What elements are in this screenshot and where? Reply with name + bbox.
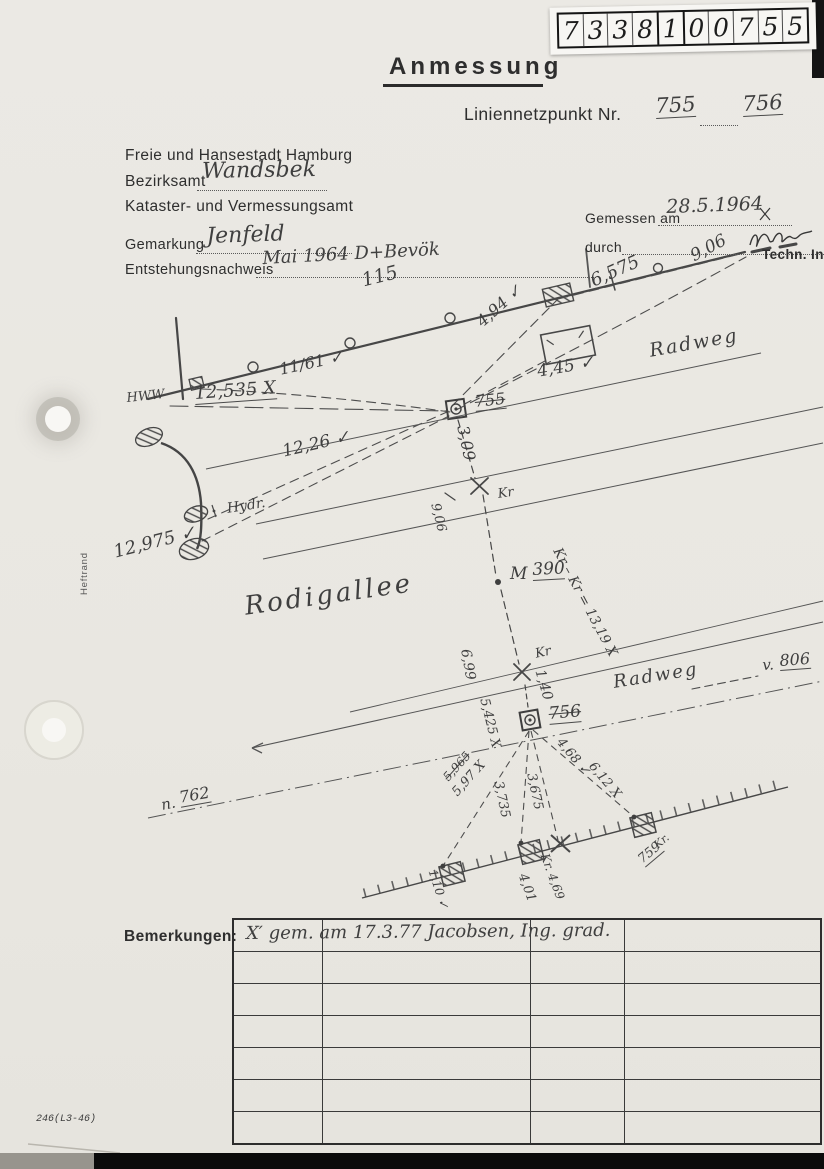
file-digit: 5: [782, 9, 807, 42]
gemessen-dotline: [658, 224, 792, 226]
point-label-756: 756: [548, 703, 582, 725]
point-number-label: Liniennetzpunkt Nr.: [464, 104, 621, 125]
file-digit: 1: [656, 12, 682, 45]
fence: [362, 782, 788, 898]
agency-line-3: Kataster- und Vermessungsamt: [125, 198, 353, 216]
file-digit: 3: [582, 14, 607, 47]
label-m: M: [510, 566, 527, 583]
stamp-text: Techn. In: [762, 247, 824, 262]
label-hww: HWW: [126, 388, 165, 405]
table-row: [234, 1015, 820, 1047]
point-label-755: 755: [474, 391, 506, 412]
file-digit: 5: [757, 10, 782, 43]
label-v: v.: [762, 657, 774, 673]
table-row: [234, 1047, 820, 1079]
file-digit: 8: [632, 13, 657, 46]
label-n: n.: [160, 795, 177, 812]
file-number-sticker: 7 3 3 8 1 0 0 7 5 5: [550, 2, 817, 55]
label-kr-top: Kr: [497, 486, 515, 501]
label-806: 806: [779, 651, 811, 671]
hydrant-symbol: [182, 503, 216, 525]
file-digit: 7: [733, 10, 758, 43]
bemerkungen-entry: X′ gem. am 17.3.77 Jacobsen, Ing. grad.: [246, 922, 610, 943]
table-row: [234, 951, 820, 983]
margin-note: Heftrand: [80, 552, 90, 595]
scanned-survey-form: 7 3 3 8 1 0 0 7 5 5 Anmessung Liniennetz…: [0, 0, 824, 1169]
gemarkung-value: Jenfeld: [206, 223, 285, 248]
table-row: [234, 983, 820, 1015]
punch-hole-top: [45, 406, 71, 432]
durch-label: durch: [585, 239, 622, 255]
bemerkungen-table: [232, 918, 822, 1145]
point-number-756: 756: [742, 92, 783, 117]
gemessen-value: 28.5.1964: [666, 195, 763, 217]
bezirksamt-value: Wandsbek: [202, 159, 316, 183]
label-kr-mid: Kr: [534, 645, 552, 661]
scan-edge-bottom-left: [0, 1153, 94, 1169]
point-number-dots: [700, 124, 738, 126]
bezirksamt-label: Bezirksamt: [125, 173, 206, 191]
bemerkungen-label: Bemerkungen:: [124, 928, 237, 946]
file-digit: 0: [682, 11, 708, 44]
table-row: [234, 1079, 820, 1111]
scan-edge-bottom: [0, 1153, 824, 1169]
form-number: 246(L3-46): [36, 1114, 96, 1125]
entstehung-label: Entstehungsnachweis: [125, 262, 274, 278]
punch-hole-bottom: [42, 718, 66, 742]
file-number-grid: 7 3 3 8 1 0 0 7 5 5: [557, 7, 810, 48]
page-title: Anmessung: [389, 53, 562, 81]
file-digit: 0: [708, 11, 733, 44]
measurement-dashed-lines: [170, 253, 758, 689]
gemarkung-label: Gemarkung: [125, 237, 204, 253]
file-digit: 3: [607, 13, 632, 46]
file-digit: 7: [559, 14, 583, 46]
point-number-755: 755: [655, 94, 696, 119]
point-756-symbol: [520, 710, 541, 731]
bezirksamt-dotline: [197, 189, 327, 191]
table-row: [234, 1111, 820, 1143]
entstehung-dotline: [256, 276, 596, 278]
page-fold-line: [28, 1144, 120, 1153]
title-underline: [383, 84, 543, 87]
road-edge-lines: [148, 353, 823, 818]
